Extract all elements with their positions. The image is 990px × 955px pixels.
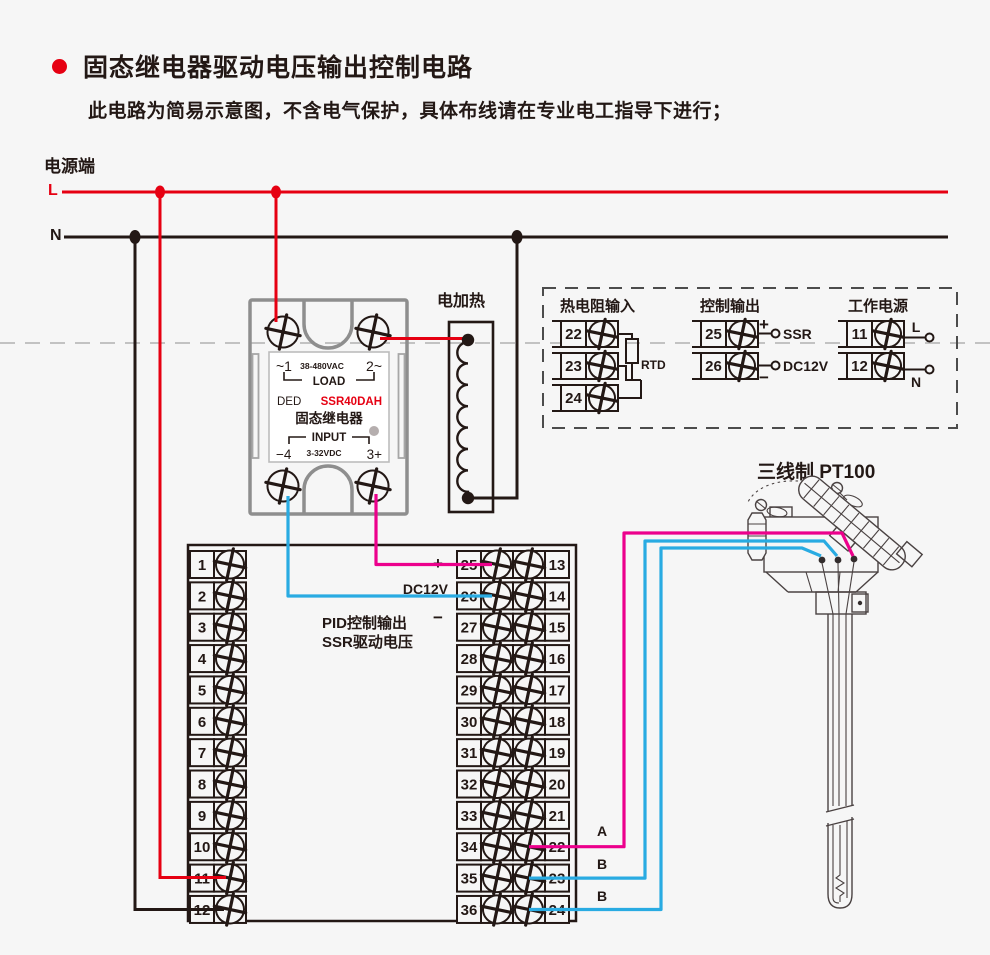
ssr-vdc-rating: 3-32VDC	[307, 448, 342, 458]
supply-n-label: N	[911, 374, 921, 390]
pt100-neck	[766, 572, 878, 592]
table-row: 123624	[190, 890, 569, 928]
ctrl-26-terminal-circle	[772, 362, 780, 370]
ctrl-ssr-label: SSR	[783, 326, 812, 342]
heater-body	[449, 322, 493, 512]
ssr-bottom-notch	[304, 466, 352, 513]
ctrl-25-terminal-circle	[772, 330, 780, 338]
terminal-number: 14	[549, 588, 566, 605]
heater-label: 电加热	[437, 291, 485, 310]
ssr-model-label: SSR40DAH	[321, 396, 382, 408]
terminal-number: 34	[461, 839, 478, 856]
terminal-number: 4	[198, 651, 207, 668]
magenta-wire-pt100-a	[529, 533, 853, 847]
supply-group-title: 工作电源	[848, 297, 908, 315]
terminal-number: 1	[198, 557, 206, 574]
ssr-input-label: INPUT	[312, 432, 347, 444]
ssr-right-tab	[399, 354, 405, 458]
wiring-diagram-page: 固态继电器驱动电压输出控制电路 此电路为简易示意图，不含电气保护，具体布线请在专…	[0, 0, 990, 955]
table-row: 63018	[190, 702, 569, 740]
ctrl-group-title: 控制输出	[700, 297, 760, 315]
ssr-name-label: 固态继电器	[295, 410, 363, 426]
pt100-probe-break	[826, 805, 854, 826]
pt100-element-squiggle	[836, 825, 844, 902]
ssr-vac-rating: 38-480VAC	[300, 361, 344, 371]
terminal-number: 32	[461, 777, 478, 794]
pt100-neck-lines	[806, 572, 840, 592]
pt100-collar-screw	[858, 601, 862, 605]
supply-l-circle	[926, 334, 934, 342]
ctrl-minus-sign: −	[759, 368, 769, 387]
pt100-terminal-dot-1	[819, 557, 826, 564]
terminal-number: 22	[565, 326, 582, 343]
terminal-number: 6	[198, 714, 206, 731]
pt100-probe-upper	[828, 614, 852, 811]
terminal-number: 29	[461, 682, 478, 699]
terminal-number: 20	[549, 777, 566, 794]
terminal-number: 25	[705, 326, 722, 343]
panel-terminal-row: 25	[692, 316, 760, 352]
ssr-brand-label: DED	[277, 396, 301, 408]
rtd-wire-23	[618, 366, 641, 380]
ssr-terminal1-label: ~1	[276, 358, 292, 374]
terminal-number: 11	[852, 326, 868, 343]
terminal-number: 8	[198, 777, 206, 794]
panel-terminal-row: 12	[838, 348, 906, 384]
blue-wire-pt100-b2	[529, 548, 821, 910]
block-minus-sign: −	[433, 608, 443, 627]
terminal-number: 35	[461, 871, 478, 888]
heater: 电加热	[437, 291, 493, 512]
panel-terminal-row: 24	[552, 380, 620, 416]
terminal-number: 27	[461, 620, 478, 637]
junction-dot-n1	[130, 230, 141, 244]
table-row: 103422	[190, 828, 569, 866]
circuit-diagram: 22232425261112 热电阻输入 控制输出 工作电源 RTD + − S…	[0, 0, 990, 955]
table-row: 113523	[190, 859, 569, 897]
terminal-number: 28	[461, 651, 478, 668]
terminal-number: 13	[549, 557, 566, 574]
rtd-label: RTD	[641, 358, 666, 372]
terminal-number: 11	[194, 871, 210, 888]
terminal-number: 7	[198, 745, 206, 762]
panel-terminals: 22232425261112	[552, 316, 906, 416]
terminal-number: 23	[565, 358, 582, 375]
wire-label-b1: B	[597, 856, 607, 872]
terminal-number: 33	[461, 808, 478, 825]
terminal-number: 18	[549, 714, 566, 731]
terminal-number: 16	[549, 651, 566, 668]
terminal-number: 26	[705, 358, 722, 375]
panel-terminal-row: 23	[552, 348, 620, 384]
panel-terminal-row: 22	[552, 316, 620, 352]
pid-output-label-line1: PID控制输出	[322, 614, 407, 632]
pt100-terminal-dot-2	[835, 557, 842, 564]
panel-terminal-row: 11	[838, 316, 906, 352]
heater-bottom-node	[462, 492, 474, 504]
wire-label-a: A	[597, 823, 607, 839]
terminal-number: 21	[549, 808, 566, 825]
terminal-number: 10	[194, 839, 211, 856]
supply-l-label: L	[912, 319, 921, 335]
pt100-sensor: 三线制 PT100	[748, 460, 922, 908]
wire-label-b2: B	[597, 888, 607, 904]
ssr-left-tab	[253, 354, 259, 458]
table-row: 93321	[190, 796, 569, 834]
table-row: 83220	[190, 765, 569, 803]
heater-top-node	[462, 334, 474, 346]
rtd-group-title: 热电阻输入	[560, 297, 635, 315]
ctrl-dc12v-label: DC12V	[783, 358, 829, 374]
terminal-number: 3	[198, 620, 206, 637]
screw-icon	[262, 311, 304, 353]
terminal-block-rows: 1251322614327154281652917630187311983220…	[190, 546, 569, 929]
ctrl-plus-sign: +	[759, 315, 769, 334]
junction-dot-n2	[512, 230, 523, 244]
terminal-number: 12	[851, 358, 868, 375]
terminal-number: 36	[461, 902, 478, 919]
pid-output-label-line2: SSR驱动电压	[322, 633, 413, 651]
panel-terminal-row: 26	[692, 348, 760, 384]
pt100-probe-wires	[822, 562, 854, 806]
terminal-number: 9	[198, 808, 206, 825]
ssr-input-plus-label: 3+	[367, 447, 383, 462]
terminal-number: 31	[461, 745, 478, 762]
supply-n-circle	[926, 366, 934, 374]
black-wire-heater-return	[474, 237, 517, 498]
screw-icon	[352, 311, 394, 353]
ssr-module: ~1 38-480VAC 2~ LOAD DED SSR40DAH 固态继电器 …	[250, 300, 407, 514]
screw-icon	[352, 465, 394, 507]
screw-icon	[262, 465, 304, 507]
table-row: 52917	[190, 671, 569, 709]
terminal-number: 30	[461, 714, 478, 731]
terminal-number: 5	[198, 682, 206, 699]
rtd-wire-24	[618, 380, 641, 398]
table-row: 73119	[190, 734, 569, 772]
terminal-number: 17	[549, 682, 566, 699]
ssr-top-notch	[304, 302, 352, 349]
junction-dot-l1	[155, 186, 165, 199]
pt100-cap-screw2-slot	[756, 501, 766, 509]
ssr-input-minus-label: −4	[276, 447, 292, 462]
terminal-number: 24	[565, 390, 582, 407]
heater-coil	[457, 342, 468, 496]
terminal-number: 19	[549, 745, 566, 762]
junction-dot-l2	[271, 186, 281, 199]
ssr-load-label: LOAD	[313, 376, 346, 388]
terminal-number: 15	[549, 620, 566, 637]
terminal-number: 2	[198, 588, 206, 605]
ssr-led-indicator	[369, 426, 379, 436]
ssr-terminal2-label: 2~	[366, 358, 382, 374]
